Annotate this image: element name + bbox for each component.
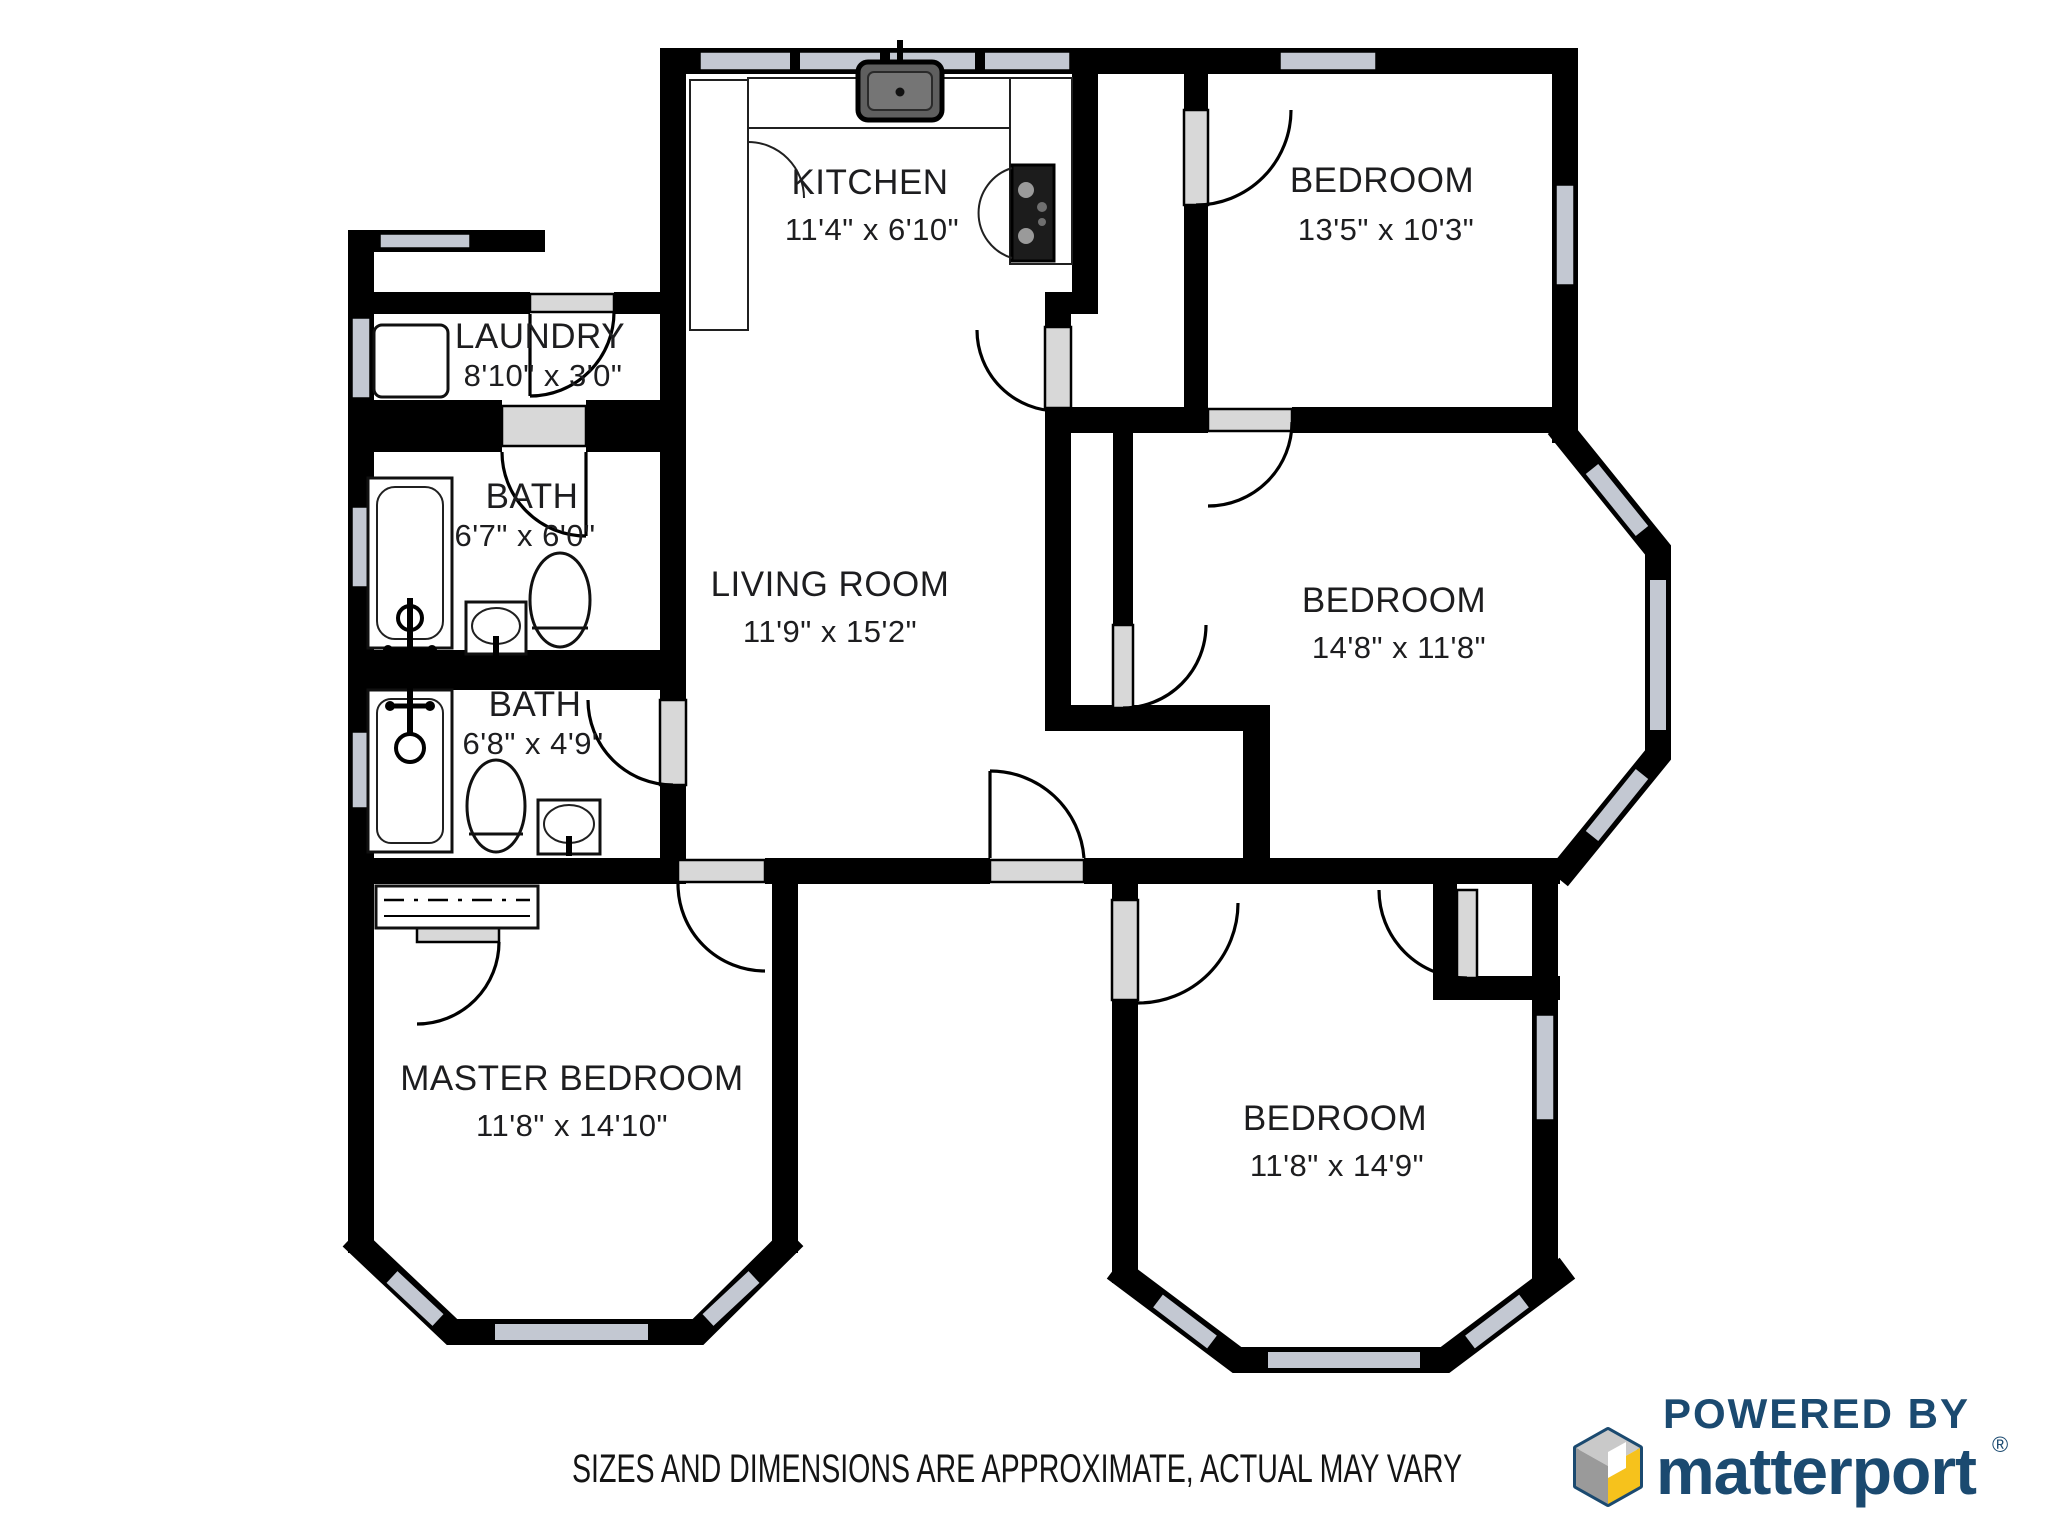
registered-mark: ®	[1992, 1432, 2008, 1457]
living-room-right-door	[1045, 327, 1071, 408]
laundry-entry-door	[530, 294, 614, 312]
bathtub	[368, 478, 452, 662]
room-dims-bedroom-mid: 14'8" x 11'8"	[1312, 630, 1486, 665]
master-closet	[376, 886, 538, 928]
room-label-master-bedroom: MASTER BEDROOM	[400, 1059, 743, 1098]
room-dims-bedroom-br: 11'8" x 14'9"	[1250, 1148, 1424, 1183]
room-dims-living-room: 11'9" x 15'2"	[743, 614, 917, 649]
room-label-bath-upper: BATH	[486, 477, 579, 516]
bedroom-mid-door	[1208, 409, 1292, 431]
floor-plan-svg: KITCHEN 11'4" x 6'10" BEDROOM 13'5" x 10…	[0, 0, 2048, 1536]
room-label-kitchen: KITCHEN	[791, 163, 948, 202]
bay-window	[1592, 469, 1642, 531]
room-dims-bath-upper: 6'7" x 6'0"	[454, 518, 595, 553]
bath1-toilet	[530, 553, 590, 647]
footer: SIZES AND DIMENSIONS ARE APPROXIMATE, AC…	[572, 1447, 1462, 1491]
bath1-sink	[466, 602, 526, 656]
shower	[368, 688, 452, 852]
bedroom-mid-closet-door	[1113, 625, 1133, 708]
bath2-sink	[538, 800, 600, 856]
room-dims-kitchen: 11'4" x 6'10"	[785, 212, 959, 247]
room-dims-bedroom-tr: 13'5" x 10'3"	[1298, 212, 1475, 247]
room-label-living-room: LIVING ROOM	[711, 565, 950, 604]
bath1-door	[502, 406, 586, 446]
bedroom-top-window	[1280, 52, 1376, 70]
bedroom-br-right-window	[1536, 1015, 1554, 1120]
laundry-window	[352, 318, 370, 398]
room-label-laundry: LAUNDRY	[455, 317, 625, 356]
master-entry-door	[678, 860, 765, 882]
room-label-bedroom-mid: BEDROOM	[1302, 581, 1486, 620]
room-dims-master-bedroom: 11'8" x 14'10"	[476, 1108, 668, 1143]
room-label-bath-lower: BATH	[489, 685, 582, 724]
bay-window	[1592, 774, 1642, 836]
room-dims-bath-lower: 6'8" x 4'9"	[462, 726, 603, 761]
matterport-logo: POWERED BY matterport ®	[1576, 1390, 2008, 1508]
room-dims-laundry: 8'10" x 3'0"	[464, 358, 623, 393]
fixtures	[368, 40, 1072, 928]
porch-window	[380, 234, 470, 248]
room-label-bedroom-br: BEDROOM	[1243, 1099, 1427, 1138]
room-label-bedroom-tr: BEDROOM	[1290, 161, 1474, 200]
matterport-wordmark: matterport	[1656, 1434, 1977, 1508]
stove	[979, 165, 1054, 261]
bedroom-br-door	[1112, 900, 1138, 1000]
bath2-door	[660, 700, 686, 785]
bath2-toilet	[467, 760, 525, 852]
floor-plan-page: KITCHEN 11'4" x 6'10" BEDROOM 13'5" x 10…	[0, 0, 2048, 1536]
bedroom-br-closet-door	[1457, 890, 1477, 978]
bedroom-tr-door	[1184, 110, 1208, 205]
powered-by-label: POWERED BY	[1663, 1390, 1970, 1437]
disclaimer-text: SIZES AND DIMENSIONS ARE APPROXIMATE, AC…	[572, 1447, 1462, 1491]
living-room-bottom-door	[990, 860, 1084, 882]
washer	[374, 325, 448, 397]
matterport-cube-icon	[1576, 1430, 1640, 1504]
bedroom-right-window	[1556, 185, 1574, 285]
